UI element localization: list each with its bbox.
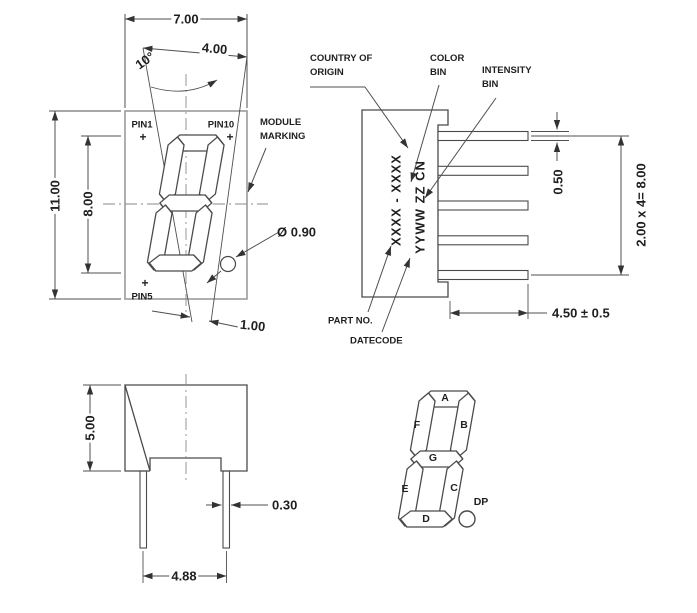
part-no-label: PART NO. bbox=[328, 316, 373, 326]
segment-g-label: G bbox=[429, 453, 437, 464]
segment-a-label: A bbox=[441, 393, 449, 404]
bottom-pin-left bbox=[140, 471, 147, 548]
segment-dp-circle bbox=[459, 511, 475, 527]
dim-digit-width-text: 4.00 bbox=[199, 41, 229, 57]
color-bin-label: COLOR BIN bbox=[430, 54, 464, 81]
dim-height-text: 11.00 bbox=[49, 178, 62, 214]
pin5-label: PIN5 bbox=[131, 292, 152, 302]
dp-diameter-leader-upper bbox=[236, 232, 279, 257]
part-number-marking-text: XXXX - XXXX bbox=[390, 154, 403, 246]
datecode-label: DATECODE bbox=[350, 336, 403, 346]
pin10-polarity-mark: + bbox=[226, 131, 233, 143]
dim-pin-spacing-text: 4.88 bbox=[169, 570, 198, 583]
module-marking-leader bbox=[248, 148, 266, 192]
dim-offset-arrow-right bbox=[209, 321, 238, 327]
pin1-label: PIN1 bbox=[131, 120, 152, 130]
pin10-label: PIN10 bbox=[208, 120, 234, 130]
side-pin-4 bbox=[438, 236, 528, 245]
datecode-marking-text: YYWW ZZ CN bbox=[414, 160, 427, 254]
dim-pin-thickness-text: 0.50 bbox=[552, 169, 565, 194]
dim-offset-text: 1.00 bbox=[237, 318, 268, 334]
pin5-polarity-mark: + bbox=[141, 277, 148, 289]
side-pin-5 bbox=[438, 271, 528, 280]
segment-f-label: F bbox=[414, 420, 420, 431]
side-body-outline bbox=[362, 110, 448, 297]
segment-dp-label: DP bbox=[474, 497, 489, 508]
dim-pin-length-text: 4.50 ± 0.5 bbox=[552, 307, 610, 320]
dim-body-height-text: 5.00 bbox=[84, 413, 97, 442]
country-leader bbox=[365, 87, 408, 148]
dim-pin-pitch-text: 2.00 x 4= 8.00 bbox=[635, 163, 648, 247]
datasheet-drawing-page: { "front_view": { "dim_width": "7.00", "… bbox=[0, 0, 697, 613]
side-pin-1 bbox=[438, 132, 528, 141]
side-pins bbox=[438, 132, 528, 280]
pin1-polarity-mark: + bbox=[139, 131, 146, 143]
segment-c-label: C bbox=[450, 483, 458, 494]
dim-dp-diameter-text: Ø 0.90 bbox=[277, 226, 316, 239]
datecode-leader bbox=[382, 258, 410, 332]
dim-digit-height-text: 8.00 bbox=[82, 189, 95, 218]
side-view-geometry bbox=[310, 85, 629, 332]
angle-arc-10deg bbox=[151, 80, 217, 91]
side-pin-2 bbox=[438, 166, 528, 175]
intensity-bin-label: INTENSITY BIN bbox=[482, 66, 532, 93]
bottom-pin-right bbox=[223, 471, 230, 548]
segment-e-label: E bbox=[401, 484, 408, 495]
dim-line-digit-width-4 bbox=[143, 48, 247, 57]
dim-pin-width-text: 0.30 bbox=[272, 499, 297, 512]
side-pin-3 bbox=[438, 201, 528, 210]
part-no-leader bbox=[368, 246, 391, 312]
bottom-view-geometry bbox=[83, 374, 268, 583]
dim-width-text: 7.00 bbox=[171, 13, 200, 26]
dim-offset-arrow-left bbox=[152, 311, 190, 317]
segment-d-label: D bbox=[422, 514, 430, 525]
front-view-geometry bbox=[49, 14, 279, 327]
front-dp-circle bbox=[221, 257, 236, 272]
segment-b-label: B bbox=[460, 420, 468, 431]
dp-diameter-leader-lower bbox=[207, 271, 221, 283]
module-marking-label: MODULE MARKING bbox=[260, 118, 305, 145]
intensity-bin-leader bbox=[425, 98, 496, 198]
country-of-origin-label: COUNTRY OF ORIGIN bbox=[310, 54, 372, 81]
